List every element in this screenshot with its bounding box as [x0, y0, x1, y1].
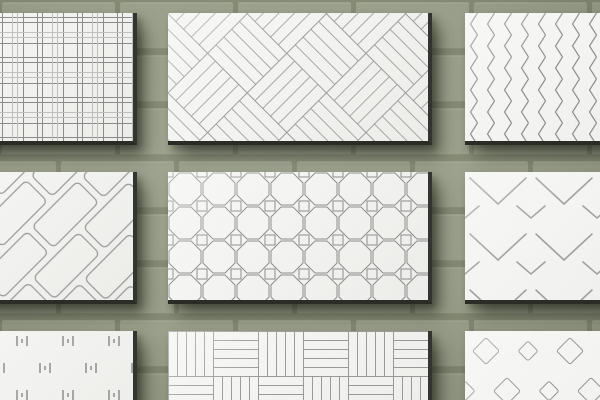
chevron-v-pattern-swatch: [465, 172, 600, 300]
plaid-grid-pattern-swatch: [0, 13, 133, 141]
dash-motif-pattern-swatch: [0, 331, 133, 400]
pattern-card-octagon: [168, 172, 432, 304]
pattern-card-diagweave: [168, 13, 432, 145]
pattern-card-diamond: [465, 331, 600, 400]
vertical-zigzag-pattern-swatch: [465, 13, 600, 141]
diagonal-basketweave-pattern-swatch: [168, 13, 428, 141]
pattern-card-diagbrick: [0, 172, 137, 304]
mockup-scene: [0, 0, 600, 400]
basketweave-pattern-swatch: [168, 331, 428, 400]
diagonal-brick-pattern-swatch: [0, 172, 133, 300]
pattern-card-basket: [168, 331, 432, 400]
octagon-square-tile-pattern-swatch: [168, 172, 428, 300]
diamond-outline-pattern-swatch: [465, 331, 600, 400]
pattern-card-zigzag: [465, 13, 600, 145]
pattern-card-plaid: [0, 13, 137, 145]
swatch-card-grid: [0, 0, 600, 400]
pattern-card-dash: [0, 331, 137, 400]
pattern-card-chevron: [465, 172, 600, 304]
